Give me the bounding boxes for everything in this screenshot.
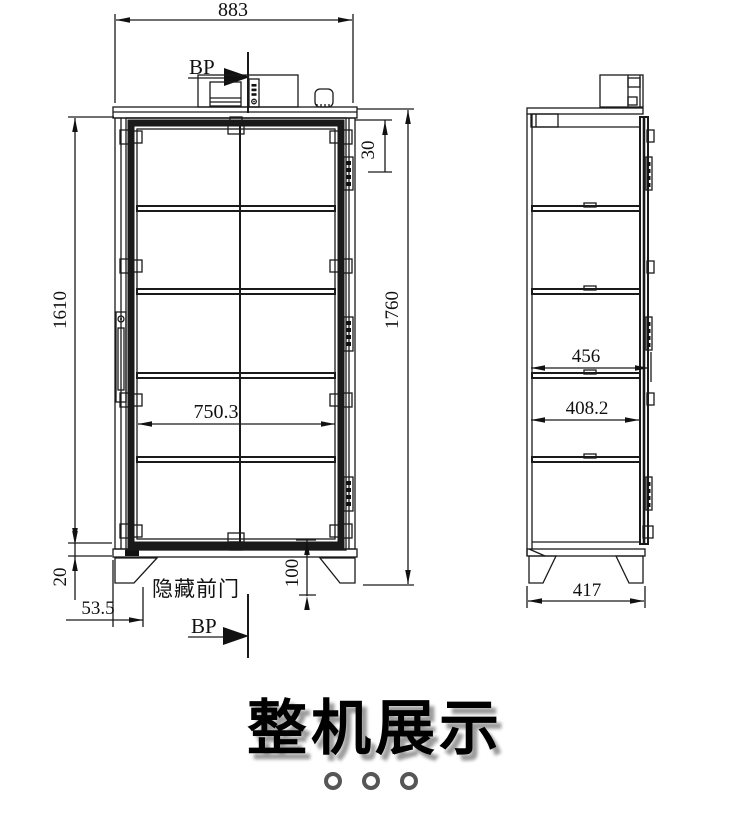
front-door xyxy=(116,117,353,550)
pager-dots xyxy=(0,772,746,790)
dim-20: 20 xyxy=(50,531,112,600)
dim-label-30: 30 xyxy=(358,141,379,160)
page-title: 整机展示 xyxy=(0,680,750,767)
dim-1610: 1610 xyxy=(50,117,114,543)
dim-label-100: 100 xyxy=(282,559,303,588)
dim-750: 750.3 xyxy=(138,401,335,427)
shelves-side xyxy=(532,203,640,462)
dim-label-53: 53.5 xyxy=(81,598,114,619)
dim-456: 456 xyxy=(531,346,651,382)
dim-1760: 1760 xyxy=(357,109,414,585)
pager-dot-1[interactable] xyxy=(324,772,342,790)
dim-417: 417 xyxy=(527,580,645,608)
dim-label-750: 750.3 xyxy=(194,401,239,423)
dim-label-456: 456 xyxy=(572,346,601,367)
dim-883: 883 xyxy=(115,0,353,103)
dim-label-1610: 1610 xyxy=(50,291,71,329)
dim-label-20: 20 xyxy=(50,568,71,587)
pager-dot-3[interactable] xyxy=(400,772,418,790)
dim-408: 408.2 xyxy=(531,398,639,423)
dim-label-1760: 1760 xyxy=(382,291,403,329)
clip-bottom2 xyxy=(228,533,244,542)
cabinet-body xyxy=(113,107,357,583)
page: 883 BP xyxy=(0,0,750,816)
section-mark-bp-bottom: BP xyxy=(188,594,249,658)
bp-bottom-label: BP xyxy=(191,614,217,638)
pager-dot-2[interactable] xyxy=(362,772,380,790)
side-view: 456 408.2 417 xyxy=(527,75,654,608)
dim-label-417: 417 xyxy=(573,580,602,601)
front-view: 883 BP xyxy=(50,0,414,658)
dim-label-408: 408.2 xyxy=(566,398,609,419)
side-top-box xyxy=(600,75,643,107)
cad-drawing: 883 BP xyxy=(0,0,750,670)
dim-30: 30 xyxy=(355,120,392,172)
top-cylinder xyxy=(315,89,333,107)
door-note: 隐藏前门 xyxy=(152,577,240,601)
dim-label-883: 883 xyxy=(218,0,248,21)
